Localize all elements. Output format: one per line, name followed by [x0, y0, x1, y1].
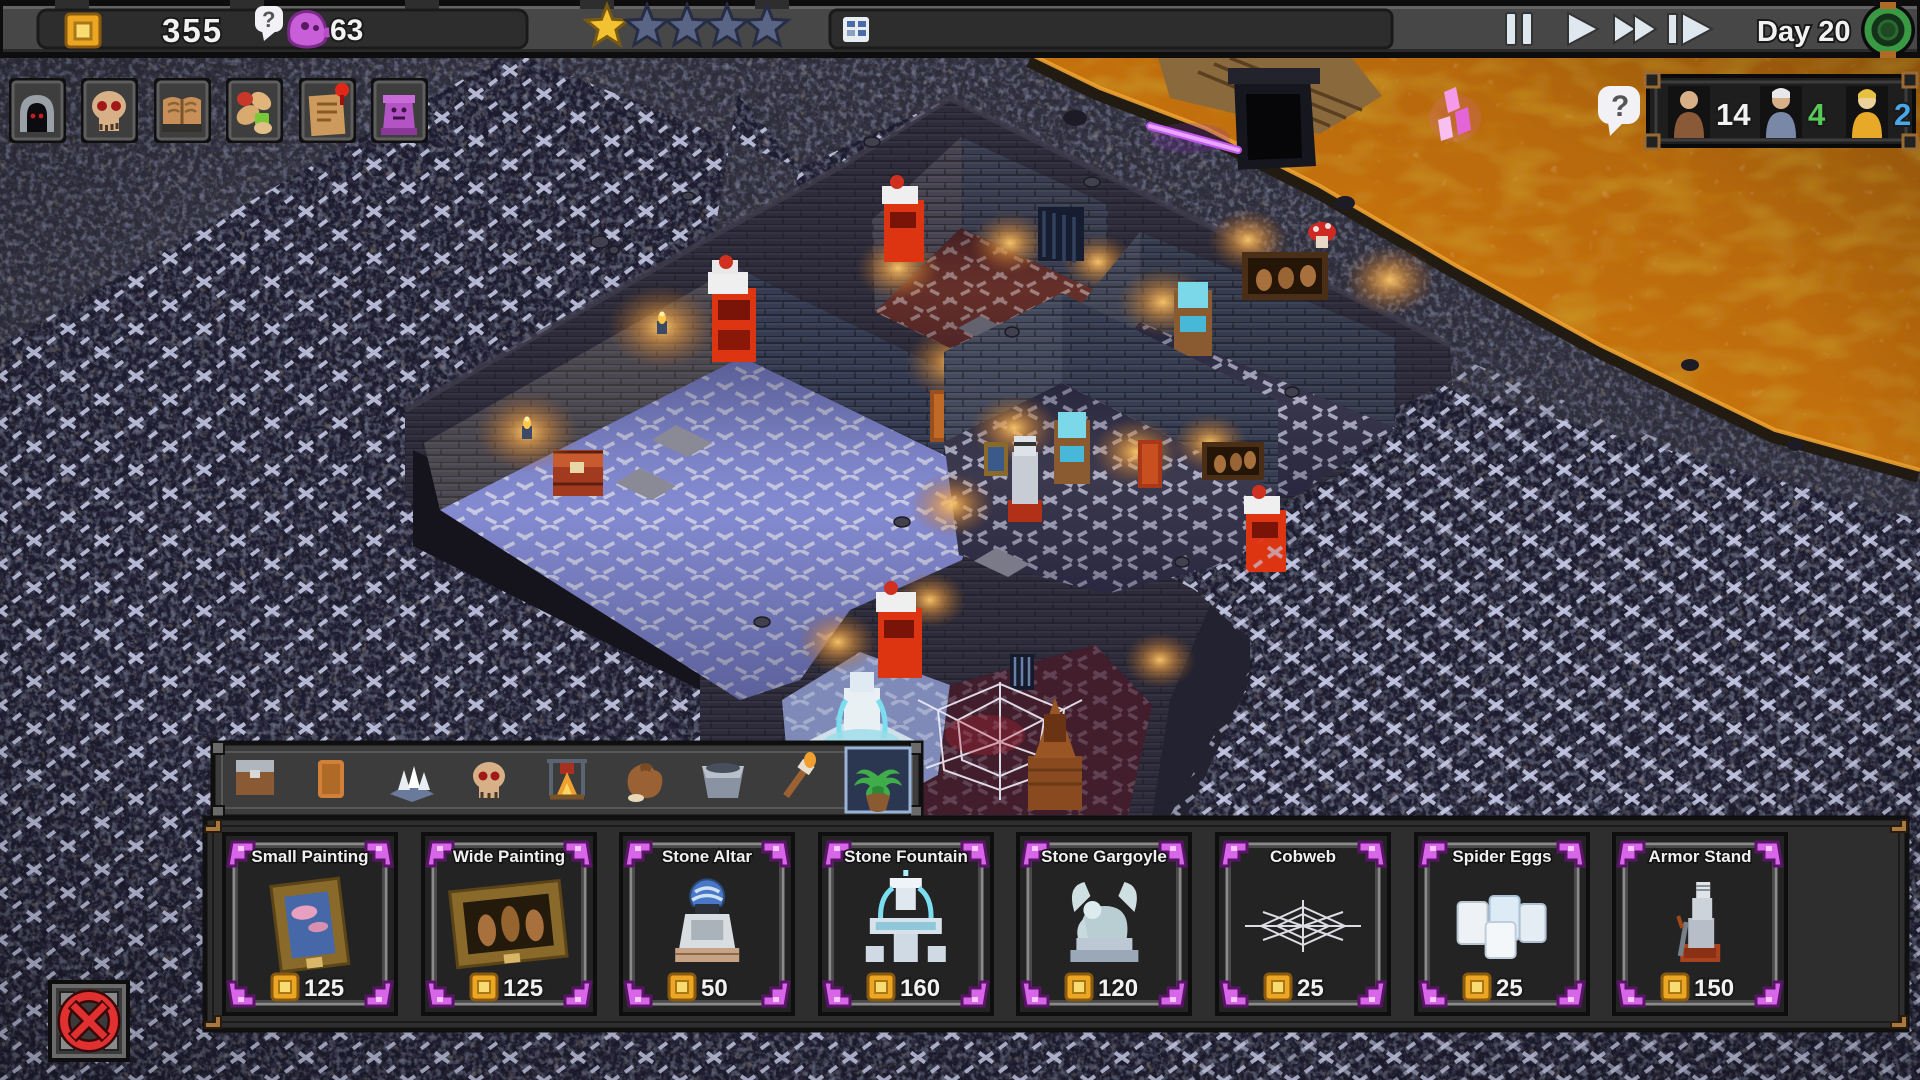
- svg-text:Armor Stand: Armor Stand: [1649, 847, 1752, 866]
- svg-text:Wide Painting: Wide Painting: [453, 847, 565, 866]
- svg-text:2: 2: [1894, 97, 1911, 132]
- svg-text:150: 150: [1694, 975, 1734, 1002]
- svg-text:50: 50: [701, 975, 728, 1002]
- svg-text:63: 63: [330, 14, 363, 47]
- svg-text:Stone Gargoyle: Stone Gargoyle: [1041, 847, 1167, 866]
- svg-text:?: ?: [1611, 90, 1629, 123]
- svg-text:Stone Altar: Stone Altar: [662, 847, 752, 866]
- svg-text:Stone Fountain: Stone Fountain: [844, 847, 968, 866]
- svg-text:?: ?: [262, 7, 275, 32]
- svg-text:Cobweb: Cobweb: [1270, 847, 1336, 866]
- svg-text:14: 14: [1716, 97, 1751, 132]
- svg-text:125: 125: [503, 975, 543, 1002]
- svg-text:120: 120: [1098, 975, 1138, 1002]
- svg-text:125: 125: [304, 975, 344, 1002]
- svg-text:25: 25: [1297, 975, 1324, 1002]
- svg-text:25: 25: [1496, 975, 1523, 1002]
- svg-text:160: 160: [900, 975, 940, 1002]
- svg-text:Spider Eggs: Spider Eggs: [1452, 847, 1551, 866]
- svg-text:Small Painting: Small Painting: [251, 847, 368, 866]
- svg-text:4: 4: [1808, 97, 1826, 132]
- svg-text:355: 355: [162, 12, 223, 49]
- svg-text:Day 20: Day 20: [1757, 16, 1851, 48]
